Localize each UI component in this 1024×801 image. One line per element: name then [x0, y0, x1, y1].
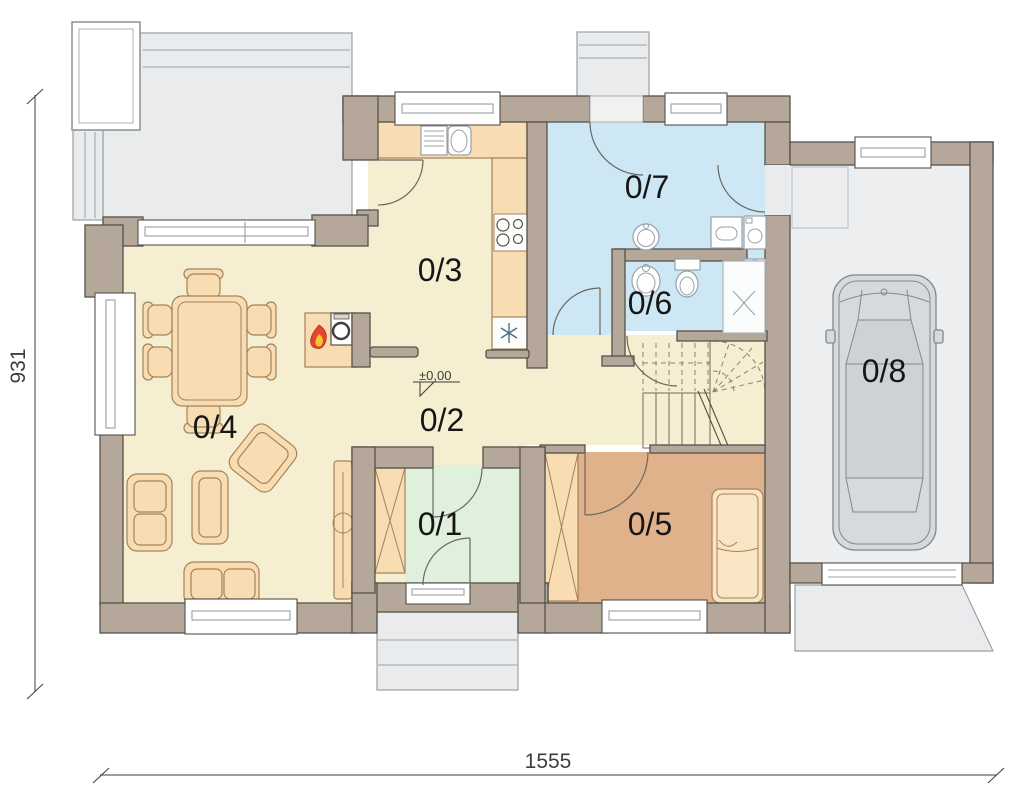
car — [826, 275, 943, 550]
window-terrace-sliding — [138, 220, 315, 245]
garage-door-opening — [822, 563, 962, 585]
fireplace — [305, 313, 357, 367]
car-mirror — [826, 330, 835, 343]
radiator — [333, 461, 353, 599]
bed — [712, 489, 763, 603]
driveway — [795, 585, 993, 651]
room-label-0-4: 0/4 — [193, 409, 237, 445]
dining-table — [172, 296, 247, 406]
wall-kitchen-utility — [527, 122, 547, 368]
door-opening-utility-exterior — [590, 96, 643, 122]
window-living-left — [95, 293, 135, 435]
room-label-0-8: 0/8 — [862, 353, 906, 389]
room-label-0-7: 0/7 — [625, 169, 669, 205]
window-living-bottom — [185, 599, 297, 634]
car-mirror — [934, 330, 943, 343]
room-0-7-passage-floor — [547, 253, 613, 335]
room-label-0-1: 0/1 — [418, 506, 462, 542]
fridge-icon — [492, 317, 527, 349]
window-kitchen — [395, 92, 500, 125]
room-label-0-6: 0/6 — [628, 285, 672, 321]
shower-icon — [723, 261, 765, 333]
window-garage — [855, 137, 931, 168]
room-label-0-2: 0/2 — [420, 402, 464, 438]
window-bedroom-bottom — [602, 600, 707, 633]
terrace-planter — [72, 22, 140, 130]
toilet-icon — [675, 259, 700, 297]
window-utility — [665, 93, 727, 125]
terrace-side-steps — [73, 130, 103, 220]
entrance-steps — [377, 612, 518, 690]
washing-machine-icon — [744, 216, 766, 249]
dimension-width-label: 1555 — [525, 750, 572, 773]
floor-plan-drawing: 0/1 0/2 0/3 0/4 0/5 0/6 0/7 0/8 ±0,00 93… — [0, 0, 1024, 801]
floor-plan-canvas: 0/1 0/2 0/3 0/4 0/5 0/6 0/7 0/8 ±0,00 93… — [0, 0, 1024, 801]
wardrobe-bedroom — [545, 453, 578, 601]
dimension-height-label: 931 — [7, 348, 30, 383]
armchair — [192, 471, 228, 544]
dimension-vertical: 931 — [7, 89, 43, 699]
entry-door-threshold — [406, 583, 470, 604]
laundry-tub-icon — [711, 217, 742, 248]
wardrobe-vestibule — [375, 468, 405, 573]
entry-stoop-top — [577, 32, 649, 97]
level-marker-text: ±0,00 — [419, 368, 451, 383]
kitchen-cooktop-icon — [494, 214, 527, 251]
room-label-0-3: 0/3 — [418, 252, 462, 288]
door-opening-garage-utility — [765, 165, 790, 215]
room-label-0-5: 0/5 — [628, 506, 672, 542]
room-0-2-floor — [527, 335, 767, 445]
dimension-horizontal: 1555 — [93, 750, 1004, 783]
wall-kitchen-corner-pillar — [343, 96, 378, 160]
kitchen-sink-icon — [421, 121, 471, 155]
terrace — [72, 22, 352, 225]
stove-icon — [331, 313, 352, 345]
